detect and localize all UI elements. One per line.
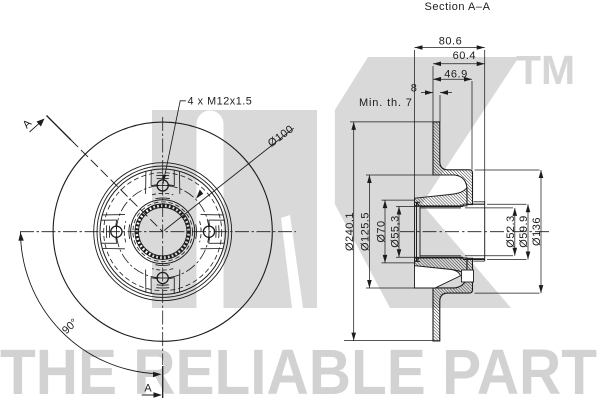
svg-text:Ø59.9: Ø59.9 <box>518 215 530 247</box>
svg-text:Ø52.3: Ø52.3 <box>505 215 517 247</box>
svg-text:4 x M12x1.5: 4 x M12x1.5 <box>188 95 253 107</box>
svg-text:Ø55,3: Ø55,3 <box>389 215 401 247</box>
svg-text:46.9: 46.9 <box>444 69 467 81</box>
svg-text:TM: TM <box>516 47 575 93</box>
svg-text:60.4: 60.4 <box>453 50 476 62</box>
svg-text:Ø125.5: Ø125.5 <box>360 212 372 251</box>
svg-text:Ø70: Ø70 <box>375 220 387 242</box>
svg-text:Ø240.1: Ø240.1 <box>344 212 356 251</box>
svg-text:90°: 90° <box>60 317 80 337</box>
svg-text:Ø136: Ø136 <box>531 217 543 246</box>
svg-text:8: 8 <box>411 83 417 95</box>
svg-text:Section A–A: Section A–A <box>425 1 491 13</box>
svg-text:80.6: 80.6 <box>439 36 462 48</box>
svg-text:THE RELIABLE PART: THE RELIABLE PART <box>0 336 597 400</box>
svg-text:A: A <box>144 383 152 395</box>
svg-text:Min. th. 7: Min. th. 7 <box>359 97 413 109</box>
